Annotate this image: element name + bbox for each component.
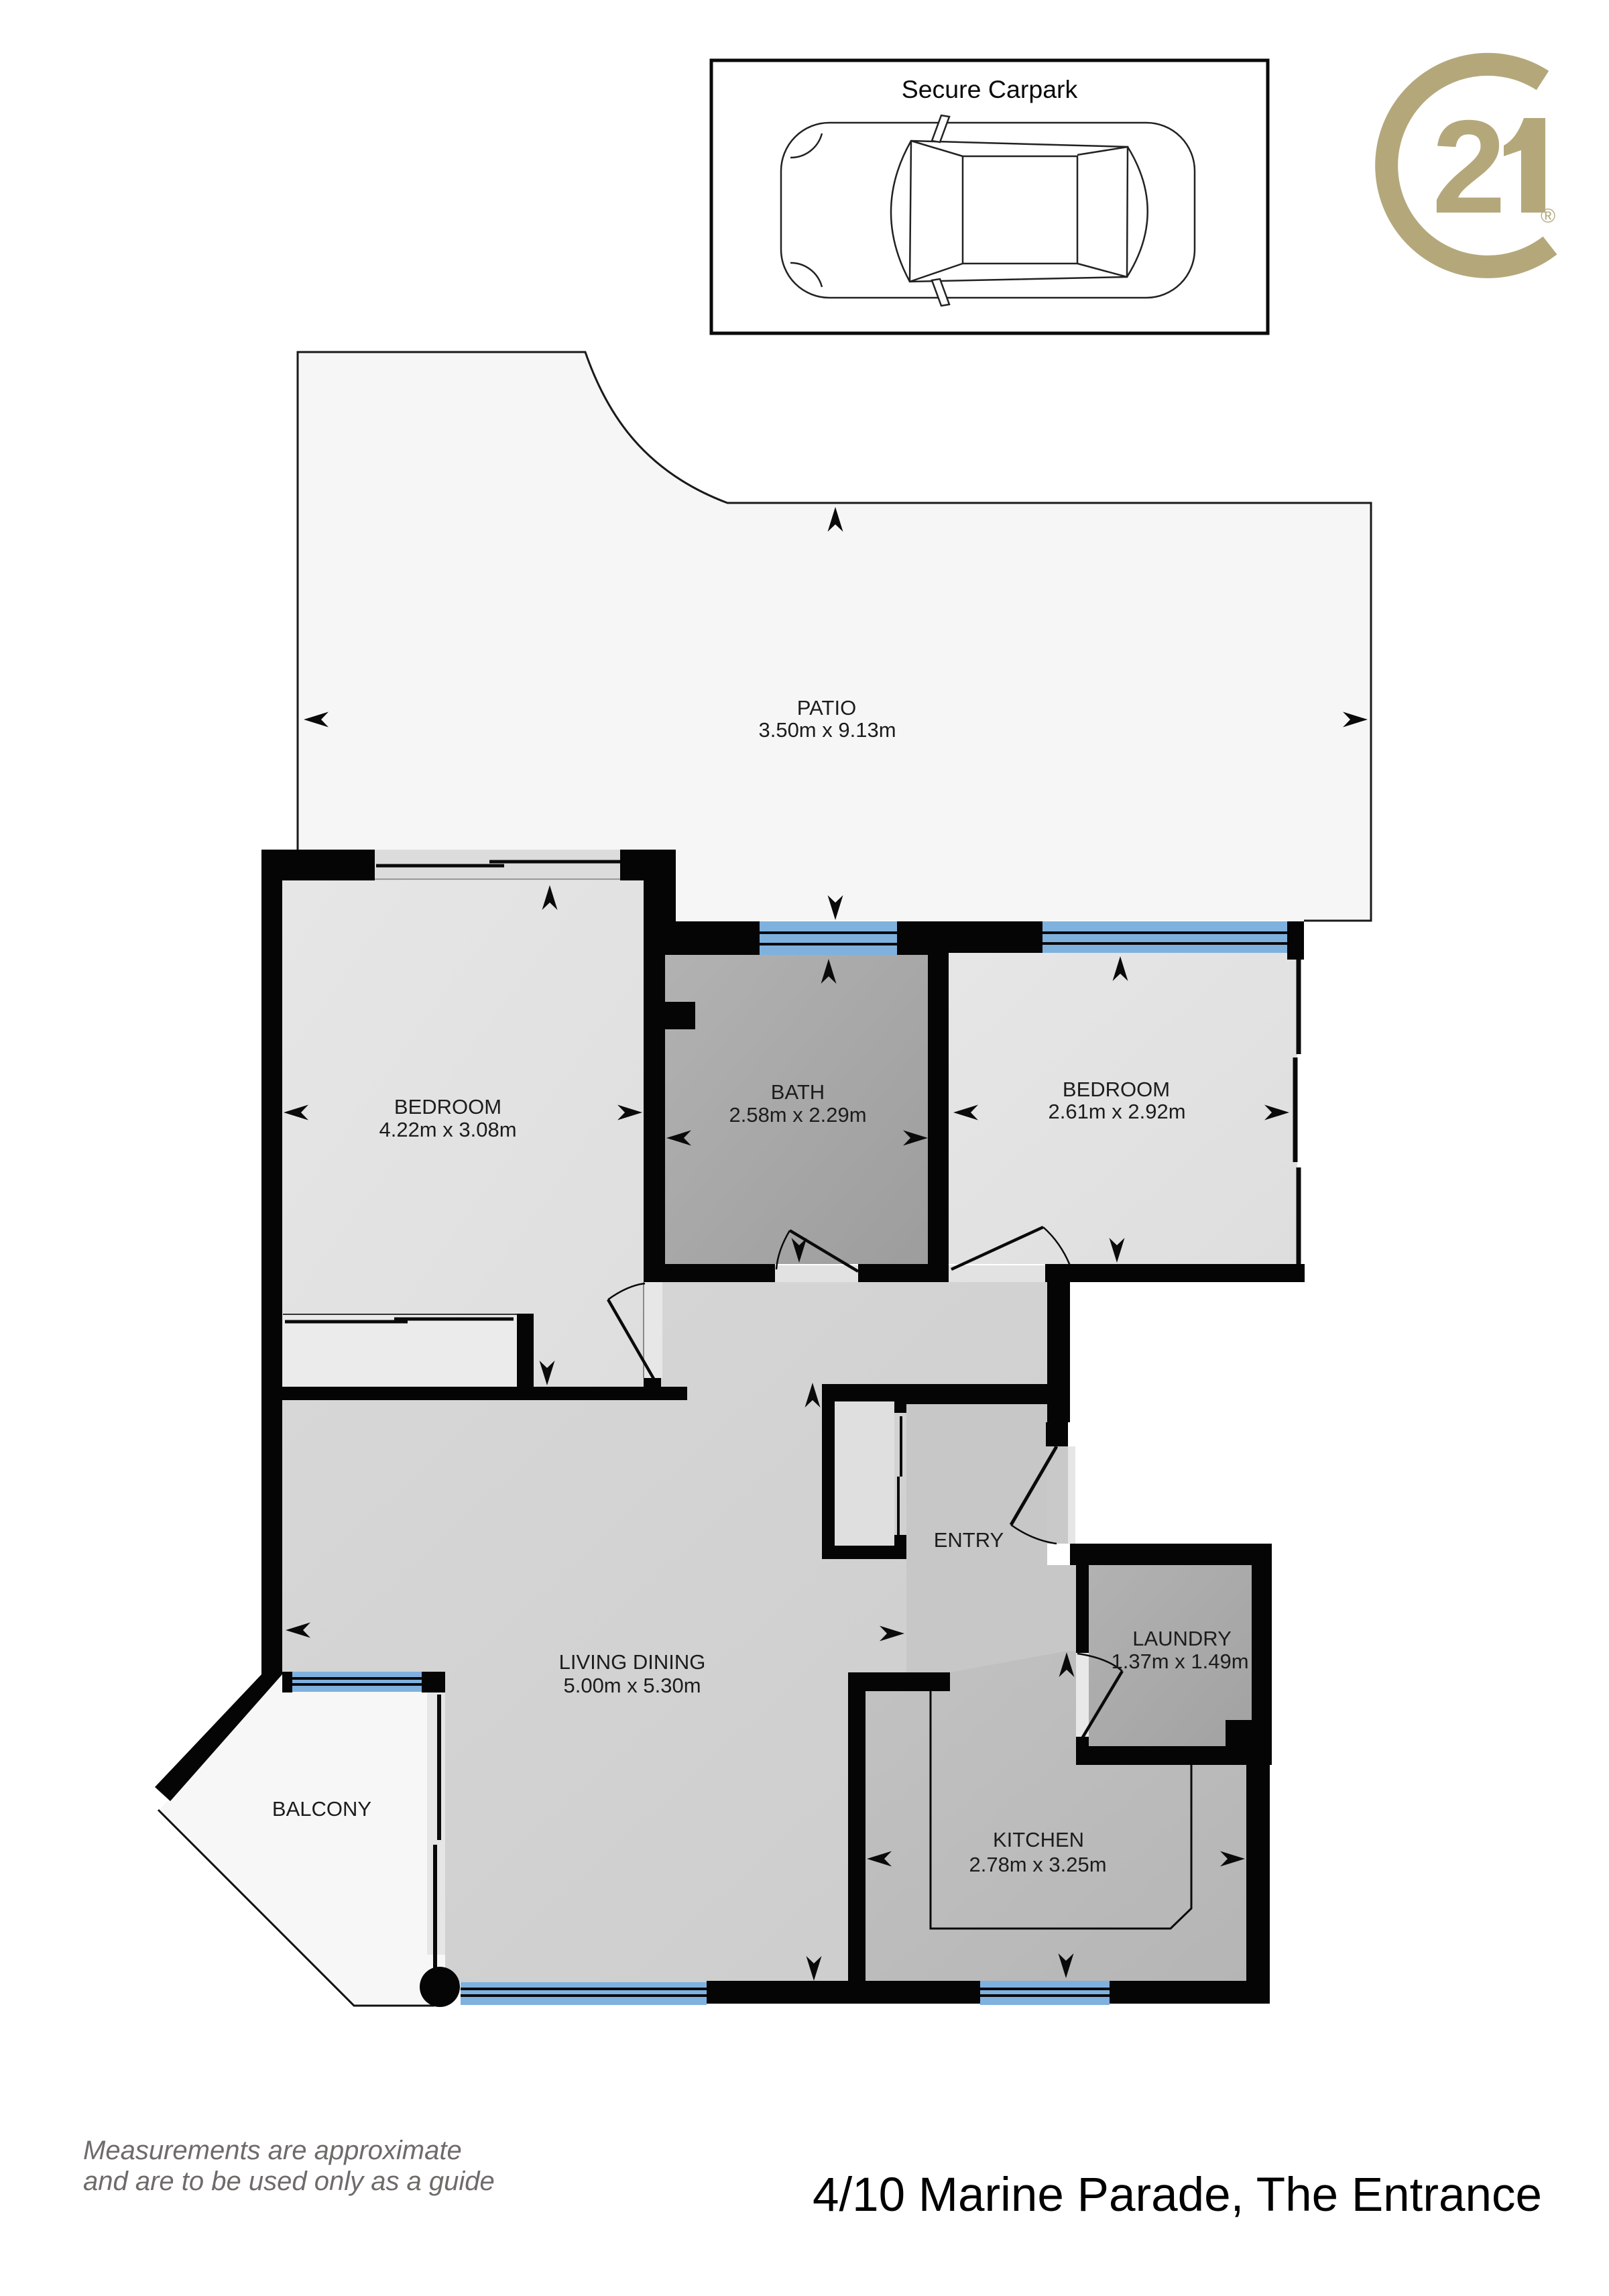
svg-text:ENTRY: ENTRY (934, 1528, 1004, 1552)
svg-text:4.22m x 3.08m: 4.22m x 3.08m (379, 1118, 516, 1141)
svg-text:4/10 Marine Parade, The Entran: 4/10 Marine Parade, The Entrance (813, 2169, 1542, 2222)
svg-text:2.78m x 3.25m: 2.78m x 3.25m (969, 1853, 1106, 1876)
svg-text:LIVING DINING: LIVING DINING (559, 1650, 706, 1674)
svg-text:3.50m x 9.13m: 3.50m x 9.13m (758, 718, 896, 742)
svg-text:®: ® (1541, 205, 1555, 227)
svg-text:PATIO: PATIO (797, 696, 856, 720)
svg-text:Secure Carpark: Secure Carpark (902, 75, 1078, 103)
svg-text:2.61m x 2.92m: 2.61m x 2.92m (1048, 1100, 1185, 1123)
svg-text:5.00m x 5.30m: 5.00m x 5.30m (563, 1674, 701, 1697)
svg-text:BEDROOM: BEDROOM (1063, 1078, 1170, 1101)
svg-text:BATH: BATH (771, 1080, 825, 1104)
svg-text:and are to be used only as a g: and are to be used only as a guide (83, 2167, 495, 2196)
svg-text:BALCONY: BALCONY (272, 1797, 371, 1821)
svg-text:1.37m x 1.49m: 1.37m x 1.49m (1111, 1650, 1248, 1673)
svg-text:BEDROOM: BEDROOM (394, 1095, 501, 1118)
svg-text:2: 2 (1432, 93, 1506, 241)
svg-text:LAUNDRY: LAUNDRY (1132, 1627, 1232, 1650)
svg-text:KITCHEN: KITCHEN (993, 1828, 1084, 1851)
svg-text:2.58m x 2.29m: 2.58m x 2.29m (729, 1103, 866, 1127)
svg-text:Measurements are approximate: Measurements are approximate (83, 2136, 462, 2165)
